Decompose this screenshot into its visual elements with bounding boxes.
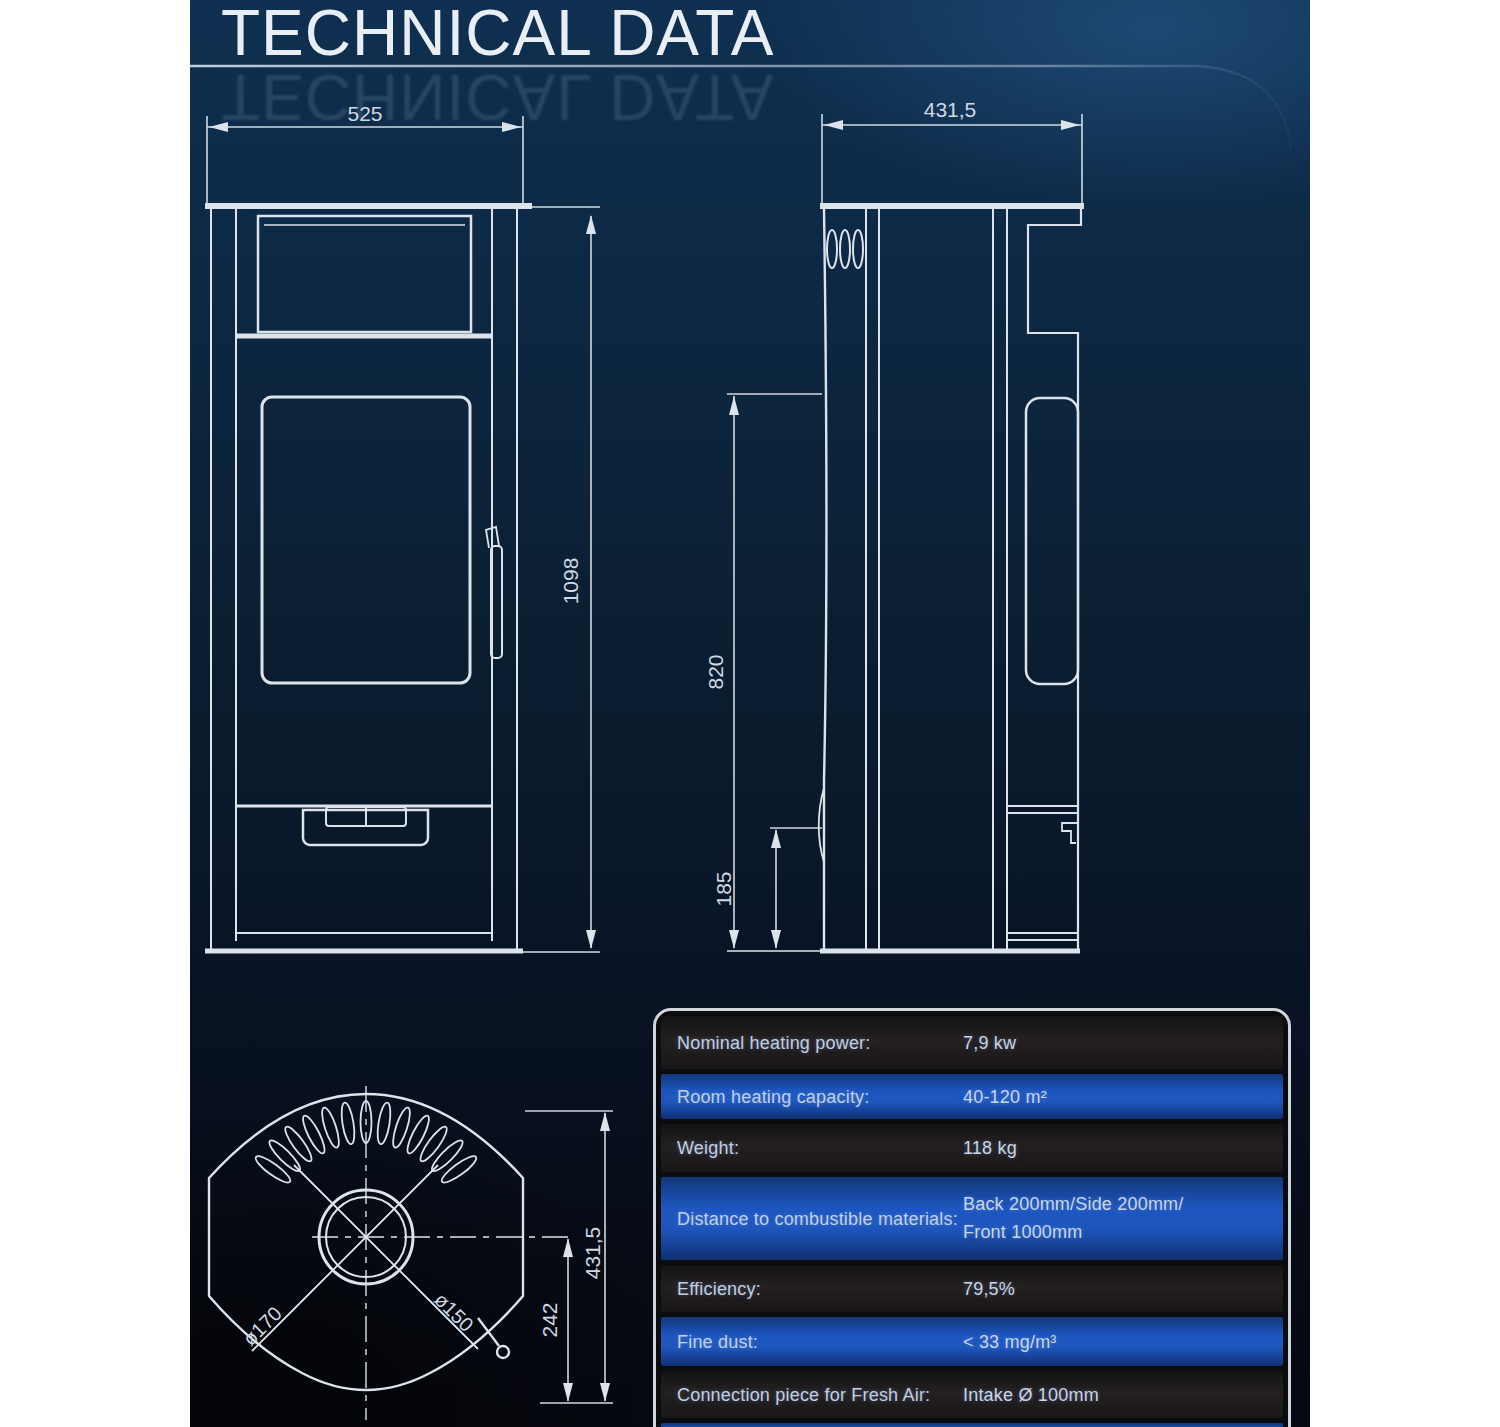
top-view-drawing (209, 1086, 613, 1420)
spec-value: Back 200mm/Side 200mm/ Front 1000mm (963, 1190, 1184, 1248)
spec-value: < 33 mg/m³ (963, 1331, 1057, 1352)
spec-row-efficiency: Efficiency: 79,5% (661, 1265, 1283, 1312)
spec-row-fresh-air-connection: Connection piece for Fresh Air: Intake Ø… (661, 1371, 1283, 1418)
spec-row-weight: Weight: 118 kg (661, 1124, 1283, 1172)
spec-row-room-heating-capacity: Room heating capacity: 40-120 m² (661, 1074, 1283, 1119)
front-view-drawing (205, 116, 600, 952)
spec-value-line2: Front 1000mm (963, 1219, 1184, 1248)
front-width-dim-label: 525 (347, 102, 382, 125)
technical-data-sheet: TECHNICAL DATA TECHNICAL DATA (0, 0, 1500, 1427)
spec-row-fine-dust: Fine dust: < 33 mg/m³ (661, 1317, 1283, 1366)
spec-label: Efficiency: (677, 1278, 761, 1299)
spec-value: Intake Ø 100mm (963, 1384, 1099, 1405)
spec-label: Distance to combustible materials: (677, 1208, 958, 1229)
side-depth-dim-label: 431,5 (924, 98, 977, 121)
side-view-drawing (727, 114, 1084, 951)
spec-value: 7,9 kw (963, 1032, 1016, 1053)
spec-value: 40-120 m² (963, 1086, 1047, 1107)
top-depth-dim-label: 431,5 (581, 1227, 604, 1280)
spec-label: Weight: (677, 1138, 739, 1159)
spec-label: Nominal heating power: (677, 1032, 871, 1053)
top-outer-diameter-label: ø170 (238, 1302, 286, 1350)
spec-label: Fine dust: (677, 1331, 758, 1352)
spec-label: Connection piece for Fresh Air: (677, 1384, 930, 1405)
front-height-dim-label: 1098 (559, 558, 582, 605)
spec-value: 79,5% (963, 1278, 1015, 1299)
spec-row-nominal-heating-power: Nominal heating power: 7,9 kw (661, 1016, 1283, 1069)
side-flue-height-dim-label: 185 (712, 871, 735, 906)
spec-row-partial (661, 1423, 1283, 1427)
top-flue-offset-dim-label: 242 (538, 1302, 561, 1337)
side-upper-edge-dim-label: 820 (704, 654, 727, 689)
spec-table: Nominal heating power: 7,9 kw Room heati… (653, 1008, 1291, 1427)
spec-label: Room heating capacity: (677, 1086, 870, 1107)
spec-row-distance-to-combustibles: Distance to combustible materials: Back … (661, 1177, 1283, 1260)
top-inner-diameter-label: ø150 (430, 1288, 478, 1336)
spec-value-line1: Back 200mm/Side 200mm/ (963, 1190, 1184, 1219)
spec-value: 118 kg (963, 1138, 1017, 1159)
